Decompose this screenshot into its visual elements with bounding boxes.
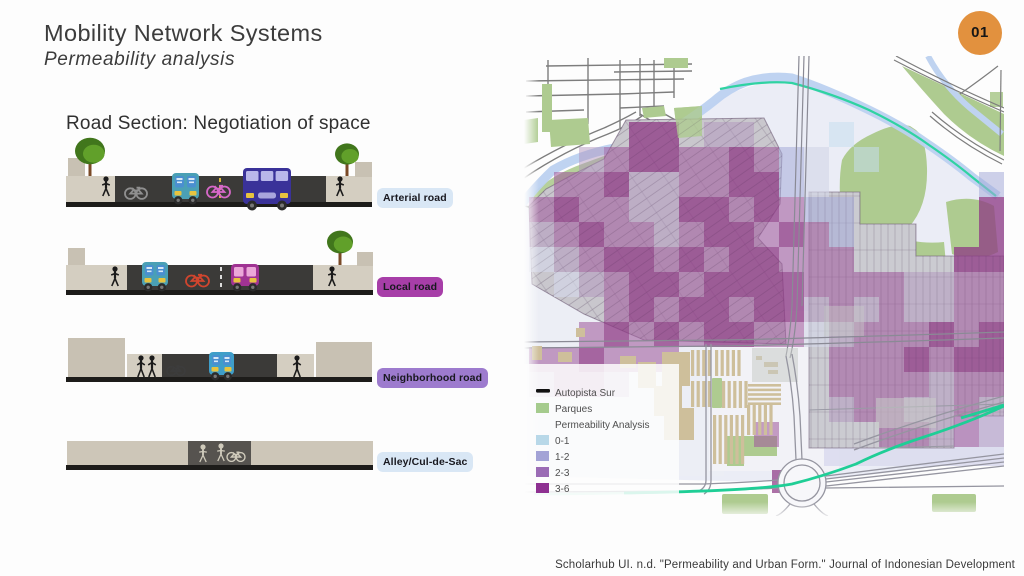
svg-text:0-1: 0-1 bbox=[555, 436, 570, 447]
svg-text:Parques: Parques bbox=[555, 404, 592, 415]
svg-text:3-6: 3-6 bbox=[555, 484, 570, 495]
svg-text:2-3: 2-3 bbox=[555, 468, 570, 479]
svg-text:Permeability Analysis: Permeability Analysis bbox=[555, 420, 649, 431]
svg-text:1-2: 1-2 bbox=[555, 452, 570, 463]
svg-text:Autopista Sur: Autopista Sur bbox=[555, 388, 616, 399]
